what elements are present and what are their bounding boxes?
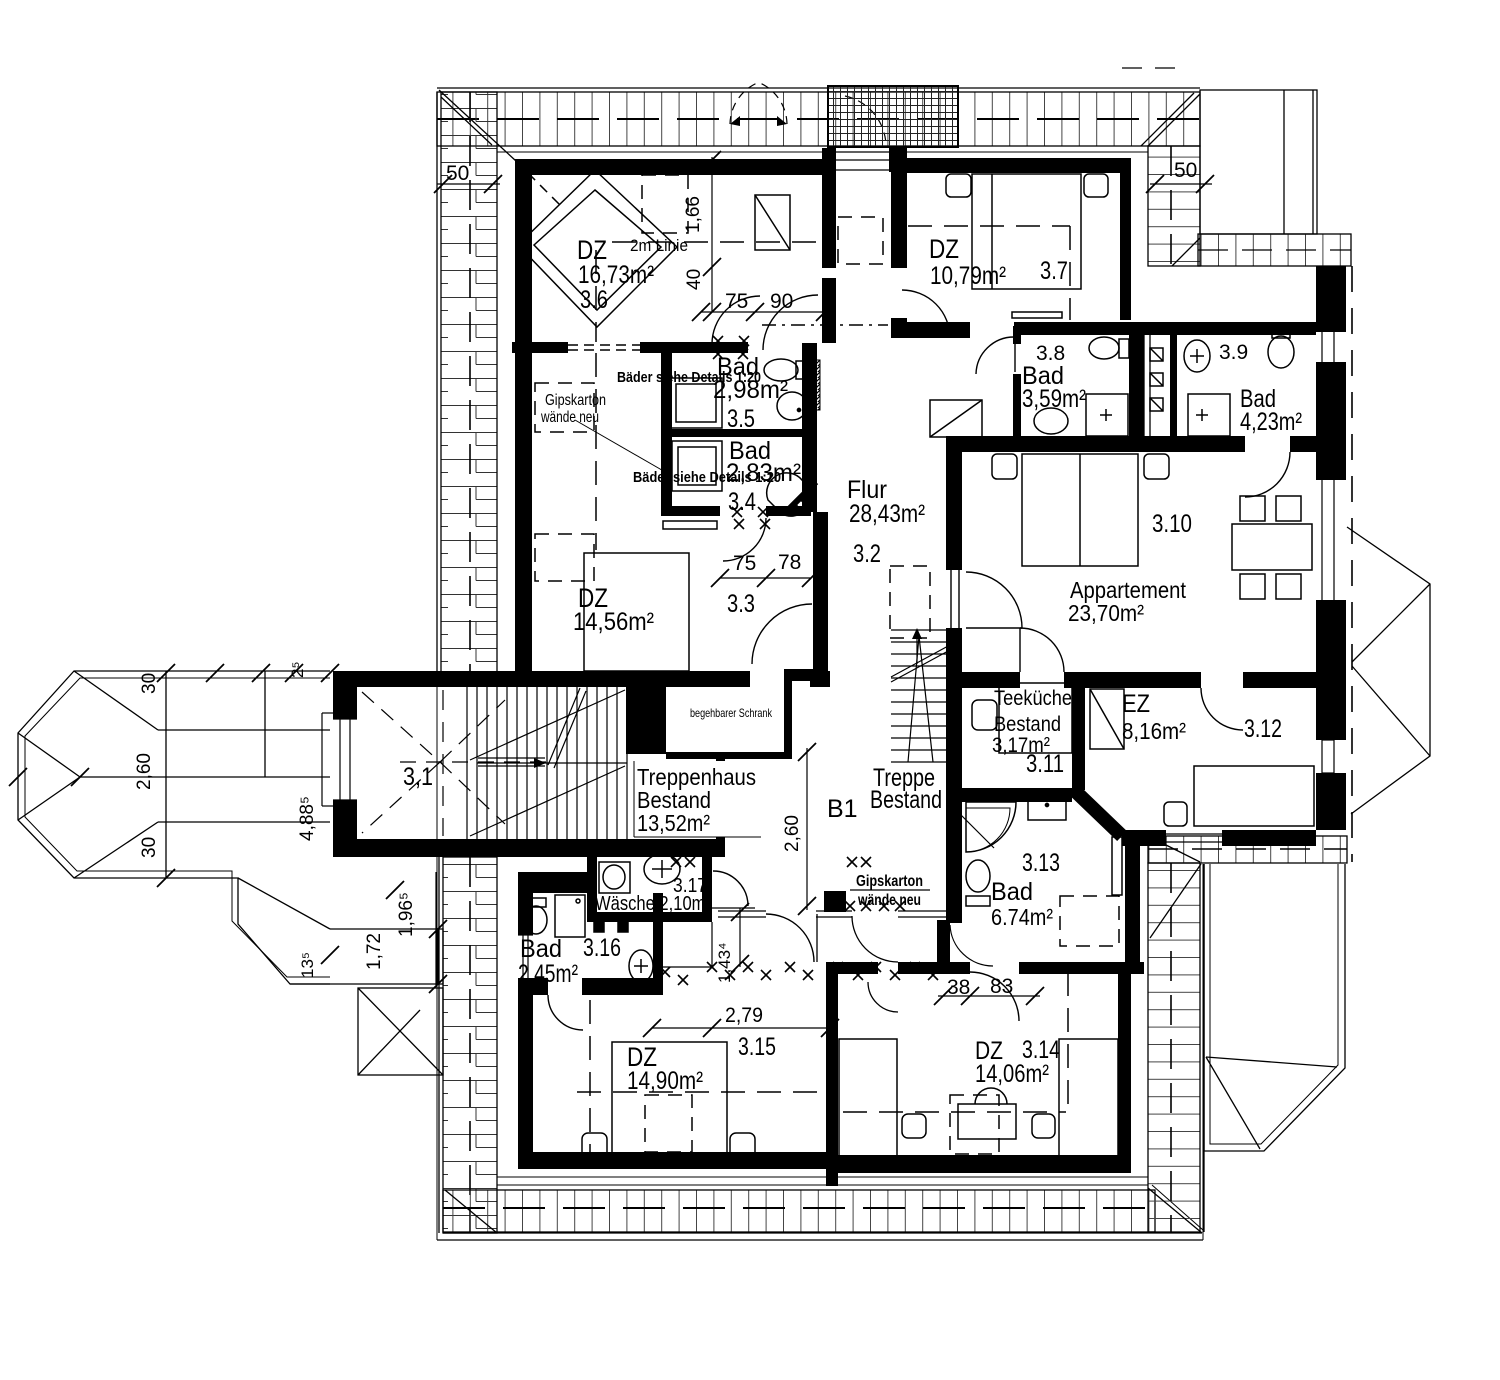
svg-text:6.74m²: 6.74m² [991, 904, 1053, 930]
svg-text:1,43⁴: 1,43⁴ [715, 943, 734, 983]
svg-text:3.2: 3.2 [853, 540, 881, 568]
svg-text:2,79: 2,79 [725, 1004, 763, 1027]
svg-text:3.6: 3.6 [580, 286, 608, 314]
svg-text:4,88⁵: 4,88⁵ [297, 796, 318, 841]
svg-text:3.3: 3.3 [727, 590, 755, 618]
svg-text:50: 50 [1174, 159, 1197, 182]
svg-text:3.16: 3.16 [583, 934, 621, 962]
svg-text:2⁵: 2⁵ [288, 661, 307, 678]
svg-text:78: 78 [778, 551, 801, 574]
svg-text:3.11: 3.11 [1026, 750, 1064, 778]
svg-text:B1: B1 [827, 795, 858, 823]
svg-text:3.10: 3.10 [1152, 510, 1192, 538]
svg-text:Bestand: Bestand [870, 786, 942, 814]
svg-text:50: 50 [446, 162, 469, 185]
svg-text:10,79m²: 10,79m² [930, 262, 1006, 290]
svg-text:Gipskarton: Gipskarton [856, 873, 923, 890]
svg-text:75: 75 [725, 290, 748, 313]
svg-text:Wäsche 2,10m²: Wäsche 2,10m² [595, 893, 711, 915]
svg-text:3.15: 3.15 [738, 1033, 776, 1061]
svg-text:23,70m²: 23,70m² [1068, 600, 1144, 626]
svg-text:2,60: 2,60 [782, 815, 803, 852]
svg-text:EZ: EZ [1122, 690, 1150, 718]
svg-text:30: 30 [139, 837, 160, 858]
svg-text:Bad: Bad [991, 878, 1033, 906]
svg-text:14,06m²: 14,06m² [975, 1060, 1049, 1088]
svg-text:90: 90 [770, 290, 793, 313]
svg-text:2,60: 2,60 [134, 753, 155, 790]
svg-text:14,90m²: 14,90m² [627, 1067, 703, 1095]
svg-text:75: 75 [733, 552, 756, 575]
svg-text:wände neu: wände neu [857, 892, 921, 909]
svg-text:4,23m²: 4,23m² [1240, 408, 1302, 436]
svg-text:1,72: 1,72 [364, 933, 385, 970]
svg-text:40: 40 [684, 269, 705, 290]
svg-text:begehbarer Schrank: begehbarer Schrank [690, 706, 773, 720]
svg-text:14,56m²: 14,56m² [573, 608, 654, 636]
svg-text:13⁵: 13⁵ [298, 952, 317, 978]
svg-text:83: 83 [990, 975, 1013, 998]
svg-text:3,59m²: 3,59m² [1022, 385, 1086, 413]
svg-text:Bestand: Bestand [994, 713, 1061, 736]
svg-text:28,43m²: 28,43m² [849, 500, 925, 528]
svg-text:Bad: Bad [520, 935, 562, 963]
svg-text:13,52m²: 13,52m² [637, 810, 710, 836]
svg-text:DZ: DZ [929, 234, 959, 264]
svg-text:3.7: 3.7 [1040, 257, 1068, 285]
svg-text:Bäder siehe Details 1:20: Bäder siehe Details 1:20 [633, 469, 781, 486]
svg-text:3.5: 3.5 [727, 405, 755, 433]
svg-text:Gipskarton: Gipskarton [545, 392, 606, 409]
svg-text:3.9: 3.9 [1219, 341, 1248, 364]
svg-text:30: 30 [139, 673, 160, 694]
svg-text:1,66: 1,66 [683, 196, 704, 233]
svg-text:3.4: 3.4 [728, 488, 756, 516]
svg-text:8,16m²: 8,16m² [1122, 718, 1186, 744]
svg-text:16,73m²: 16,73m² [578, 261, 654, 289]
svg-text:3.13: 3.13 [1022, 849, 1060, 877]
svg-text:Bäder siehe Details 1:20: Bäder siehe Details 1:20 [617, 369, 761, 386]
svg-text:wände neu: wände neu [540, 409, 599, 426]
svg-text:2,45m²: 2,45m² [518, 960, 578, 988]
svg-text:Teeküche: Teeküche [994, 687, 1072, 710]
svg-text:3,1: 3,1 [403, 763, 433, 791]
svg-text:1,96⁵: 1,96⁵ [396, 892, 417, 937]
svg-text:2m Linie: 2m Linie [630, 236, 688, 255]
svg-text:3.12: 3.12 [1244, 715, 1282, 743]
svg-text:38: 38 [947, 976, 970, 999]
